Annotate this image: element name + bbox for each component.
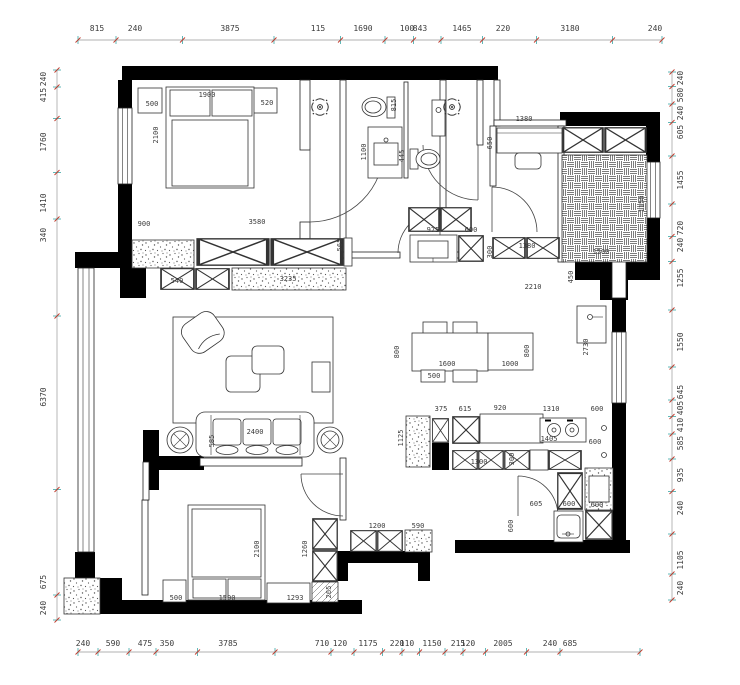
dim-label: 1255 [676,268,685,287]
dim-label: 3875 [220,24,239,33]
dim-label: 1760 [39,132,48,151]
dim-label: 115 [311,24,326,33]
dining-chair [423,322,447,334]
dim-label: 1105 [676,550,685,569]
dim-label: 675 [39,575,48,590]
dim-label: 1500 [219,594,236,602]
dim-label: 350 [160,639,175,648]
dim-label: 1175 [358,639,377,648]
wardrobe [313,551,337,581]
dim-label: 605 [530,500,543,508]
vanity-sink [368,127,402,178]
toilet [410,149,440,169]
dim-label: 240 [39,601,48,616]
balcony-tile-floor [562,155,647,262]
round-end-table [317,427,343,453]
water-point [602,453,607,458]
dim-label: 615 [459,405,472,413]
dim-label: 265 [325,586,333,599]
dim-label: 2005 [493,639,512,648]
cabinet [351,531,376,552]
cabinet [586,511,612,539]
dim-label: 340 [39,228,48,243]
dim-label: 815 [390,99,398,112]
desk [497,128,562,153]
dim-label: 240 [676,238,685,253]
bathroom-fixtures [362,82,445,178]
bedroom1-window [118,108,132,184]
dim-label: 520 [261,99,274,107]
dim-label: 565 [336,239,344,252]
floor-plan-page: 8152403875115169010084314652203180240 24… [0,0,740,685]
cabinet [549,451,581,470]
dim-label: 240 [648,24,663,33]
dim-label: 650 [486,137,494,150]
dim-label: 120 [461,639,476,648]
floor-plan-canvas: 8152403875115169010084314652203180240 24… [0,0,740,685]
dim-label: 500 [428,372,441,380]
dimension-column-left: 240415176014103406370675240 [39,68,61,623]
balcony-window [646,162,660,218]
dim-label: 843 [413,24,428,33]
desk-chair [515,153,541,169]
dim-label: 605 [676,125,685,140]
dim-label: 220 [496,24,511,33]
dim-label: 1260 [301,541,309,558]
dim-label: 2100 [152,127,160,144]
dim-label: 2100 [253,541,261,558]
living-room-window [78,268,94,552]
dim-label: 920 [494,404,507,412]
kitchen-fixtures [351,414,613,552]
dim-label: 1550 [676,332,685,351]
armchair [178,308,229,358]
dim-label: 410 [676,418,685,433]
cabinet-hatched [406,416,430,467]
dim-label: 600 [589,438,602,446]
cabinet-hatched [405,530,432,552]
balcony-cabinet [605,128,645,152]
dim-label: 240 [676,581,685,596]
dim-label: 975 [427,226,440,234]
dim-label: 120 [333,639,348,648]
dim-label: 1310 [543,405,560,413]
dim-label: 1455 [676,170,685,189]
round-end-table [167,427,193,453]
balcony-door [492,187,537,232]
water-point [602,426,607,431]
dim-label: 1300 [471,458,488,466]
wardrobe [272,239,342,265]
balcony [562,128,647,262]
balcony-cabinet [563,128,602,152]
cabinet [196,269,229,290]
appliance [589,476,609,502]
dim-label: 3180 [560,24,579,33]
dim-label: 375 [435,405,448,413]
wardrobe [198,239,268,265]
dim-label: 240 [676,106,685,121]
dim-label: 590 [106,639,121,648]
dim-label: 240 [676,501,685,516]
bedroom2-window [142,500,148,595]
dim-label: 585 [208,435,216,448]
dim-label: 415 [39,88,48,103]
double-bed [166,87,254,188]
dim-label: 815 [90,24,105,33]
dim-label: 645 [676,385,685,400]
counter [480,414,543,443]
dim-label: 600 [465,226,478,234]
dim-label: 2730 [582,339,590,356]
dim-label: 600 [591,501,604,509]
dim-label: 710 [315,639,330,648]
cabinet [453,417,479,443]
dim-label: 300 [508,453,516,466]
dim-label: 2400 [247,428,264,436]
dim-label: 1600 [439,360,456,368]
dimension-row-top: 8152403875115169010084314652203180240 [76,24,665,44]
dim-label: 1150 [638,196,646,213]
dim-label: 240 [128,24,143,33]
cabinet [433,419,449,443]
dim-label: 685 [563,639,578,648]
dim-label: 445 [398,150,406,163]
dim-label: 1410 [39,193,48,212]
kitchen-door [518,476,558,516]
side-table [312,362,330,392]
dim-label: 600 [563,500,576,508]
bedroom1-furniture [132,87,352,290]
dim-label: 1000 [502,360,519,368]
dim-label: 800 [393,346,401,359]
water-heater [577,306,606,343]
dim-label: 3785 [218,639,237,648]
dining-chair [453,322,477,334]
dim-label: 1200 [369,522,386,530]
dim-label: 1150 [422,639,441,648]
dim-label: 300 [486,246,494,259]
dim-label: 540 [171,277,184,285]
corner-hatched-block [64,578,100,614]
dim-label: 6370 [39,387,48,406]
dim-label: 580 [676,88,685,103]
wardrobe [313,519,337,549]
dim-label: 900 [138,220,151,228]
dining-furniture [412,306,606,382]
dim-label: 110 [400,639,415,648]
cabinet-hatched [132,240,194,268]
dim-label: 1500 [593,248,610,256]
dim-label: 1380 [516,115,533,123]
dim-label: 1380 [519,242,536,250]
duct-column [432,100,445,136]
dim-label: 720 [676,221,685,236]
dim-label: 1293 [287,594,304,602]
dim-label: 475 [138,639,153,648]
dim-label: 240 [39,72,48,87]
dim-label: 1465 [452,24,471,33]
dim-label: 800 [523,345,531,358]
dim-label: 240 [676,71,685,86]
dim-label: 500 [146,100,159,108]
dim-label: 1100 [360,144,368,161]
partition-wall [404,82,408,178]
dim-label: 1690 [353,24,372,33]
kitchen-window [612,332,626,403]
cabinet [378,531,402,552]
dining-chair [453,370,477,382]
kitchen-sink [554,511,583,542]
dim-label: 405 [676,401,685,416]
dim-label: 450 [567,271,575,284]
coffee-table [226,346,284,392]
bedroom2-door [301,474,343,516]
dim-label: 600 [507,520,515,533]
dim-label: 585 [676,436,685,451]
dim-label: 590 [412,522,425,530]
dim-label: 240 [543,639,558,648]
dim-label: 935 [676,468,685,483]
dim-label: 240 [76,639,91,648]
cabinet [459,236,483,261]
dim-label: 1125 [397,430,405,447]
dim-label: 500 [170,594,183,602]
dimension-column-right: 2405802406051455720240125515506454054105… [668,70,685,603]
dim-label: 1405 [541,435,558,443]
dim-label: 3235 [280,275,297,283]
hall-console [410,235,457,262]
dim-label: 3580 [249,218,266,226]
dim-label: 1900 [199,91,216,99]
dim-label: 600 [591,405,604,413]
ceiling-lamp-icon [312,99,329,116]
dim-label: 2210 [525,283,542,291]
dimension-row-bottom: 2405904753503785710120117522011011502151… [76,639,643,656]
